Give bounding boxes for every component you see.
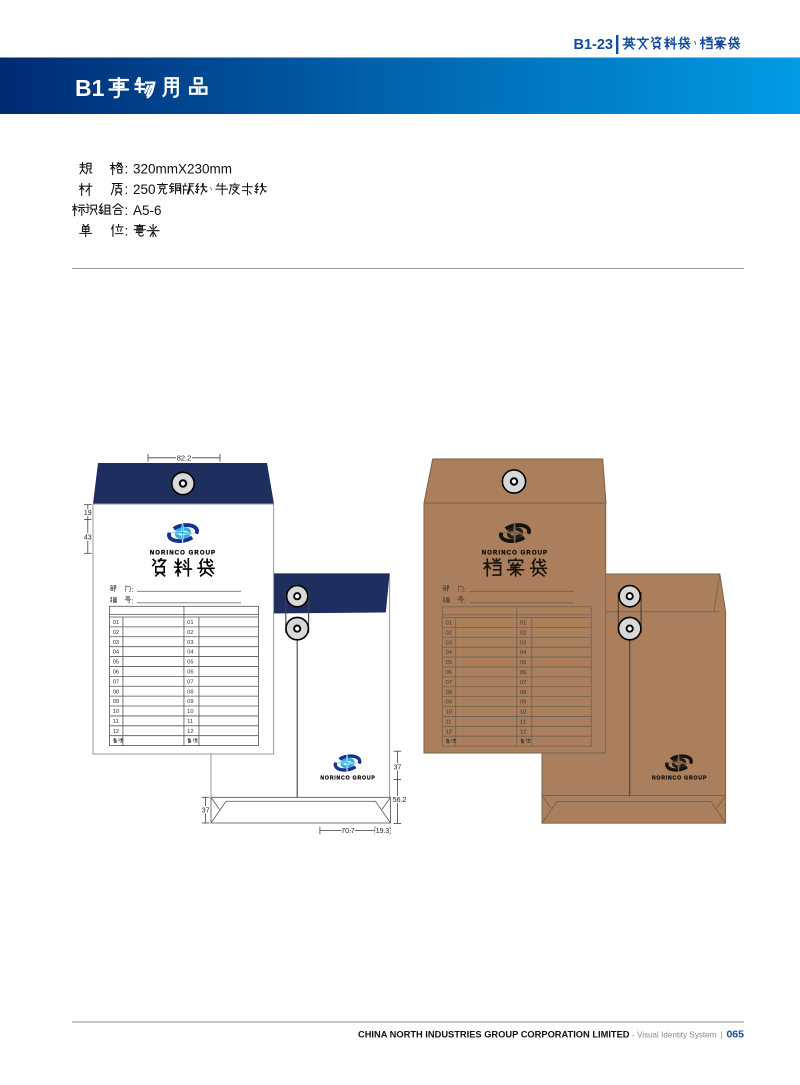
- svg-text:10: 10: [187, 709, 193, 715]
- svg-text:37: 37: [202, 808, 210, 815]
- svg-text:- Visual Identity System: - Visual Identity System: [632, 1031, 717, 1040]
- svg-text:06: 06: [446, 670, 452, 676]
- svg-text:07: 07: [113, 679, 119, 685]
- svg-text:01: 01: [113, 620, 119, 626]
- svg-text:04: 04: [520, 650, 527, 656]
- svg-text:02: 02: [113, 630, 119, 636]
- svg-text:A5-6: A5-6: [133, 203, 162, 218]
- svg-text:065: 065: [726, 1029, 744, 1041]
- svg-text:06: 06: [520, 670, 526, 676]
- svg-text:10: 10: [113, 709, 119, 715]
- svg-text:10: 10: [520, 710, 526, 716]
- svg-text:02: 02: [187, 630, 193, 636]
- svg-text::: :: [125, 203, 129, 218]
- svg-text:05: 05: [520, 660, 526, 666]
- svg-text:|: |: [721, 1030, 723, 1040]
- svg-text:12: 12: [187, 729, 193, 735]
- svg-text:09: 09: [113, 699, 119, 705]
- svg-text:37: 37: [394, 764, 402, 771]
- svg-text:10: 10: [446, 710, 452, 716]
- svg-text:09: 09: [520, 700, 526, 706]
- svg-text:07: 07: [187, 679, 193, 685]
- svg-text:04: 04: [446, 650, 453, 656]
- svg-text:B1: B1: [75, 75, 105, 101]
- svg-text:01: 01: [187, 620, 193, 626]
- svg-text:19.3: 19.3: [376, 828, 390, 835]
- svg-text:NORINCO GROUP: NORINCO GROUP: [150, 551, 216, 557]
- svg-text:04: 04: [187, 650, 194, 656]
- svg-text:82.2: 82.2: [177, 453, 192, 462]
- svg-text:11: 11: [187, 719, 193, 725]
- svg-text::: :: [132, 585, 134, 594]
- svg-text::: :: [125, 162, 129, 177]
- svg-text:03: 03: [520, 640, 526, 646]
- svg-text:12: 12: [113, 729, 119, 735]
- svg-text:NORINCO GROUP: NORINCO GROUP: [320, 776, 375, 782]
- svg-text:320mmX230mm: 320mmX230mm: [133, 162, 232, 177]
- svg-text:09: 09: [446, 700, 452, 706]
- svg-text:12: 12: [520, 729, 526, 735]
- svg-text:11: 11: [446, 719, 452, 725]
- svg-text:B1-23: B1-23: [574, 37, 614, 53]
- svg-text:07: 07: [446, 680, 452, 686]
- svg-text:01: 01: [520, 621, 526, 627]
- svg-text:08: 08: [113, 689, 119, 695]
- svg-text:11: 11: [520, 719, 526, 725]
- svg-text::: :: [464, 585, 466, 594]
- svg-text:02: 02: [520, 630, 526, 636]
- svg-text:19: 19: [84, 510, 92, 517]
- svg-text:12: 12: [446, 729, 452, 735]
- svg-text:03: 03: [446, 640, 452, 646]
- svg-text:250: 250: [133, 182, 156, 197]
- svg-text:NORINCO GROUP: NORINCO GROUP: [482, 551, 548, 557]
- svg-text:08: 08: [520, 690, 526, 696]
- svg-text:02: 02: [446, 630, 452, 636]
- svg-text::: :: [132, 597, 134, 606]
- svg-text:06: 06: [187, 670, 193, 676]
- svg-text:NORINCO GROUP: NORINCO GROUP: [652, 776, 707, 782]
- svg-text:08: 08: [446, 690, 452, 696]
- svg-text:03: 03: [113, 640, 119, 646]
- svg-text:01: 01: [446, 621, 452, 627]
- svg-text:CHINA NORTH INDUSTRIES GROUP C: CHINA NORTH INDUSTRIES GROUP CORPORATION…: [358, 1030, 630, 1040]
- svg-text::: :: [125, 182, 129, 197]
- svg-text:03: 03: [187, 640, 193, 646]
- svg-text::: :: [464, 597, 466, 606]
- svg-text:05: 05: [187, 660, 193, 666]
- svg-text:05: 05: [113, 660, 119, 666]
- svg-text::: :: [125, 224, 129, 239]
- svg-text:43: 43: [84, 535, 92, 542]
- svg-text:09: 09: [187, 699, 193, 705]
- svg-text:06: 06: [113, 670, 119, 676]
- svg-text:08: 08: [187, 689, 193, 695]
- svg-text:05: 05: [446, 660, 452, 666]
- svg-text:04: 04: [113, 650, 120, 656]
- svg-text:07: 07: [520, 680, 526, 686]
- svg-text:56.2: 56.2: [393, 797, 407, 804]
- svg-text:11: 11: [113, 719, 119, 725]
- svg-text:70.7: 70.7: [341, 828, 355, 835]
